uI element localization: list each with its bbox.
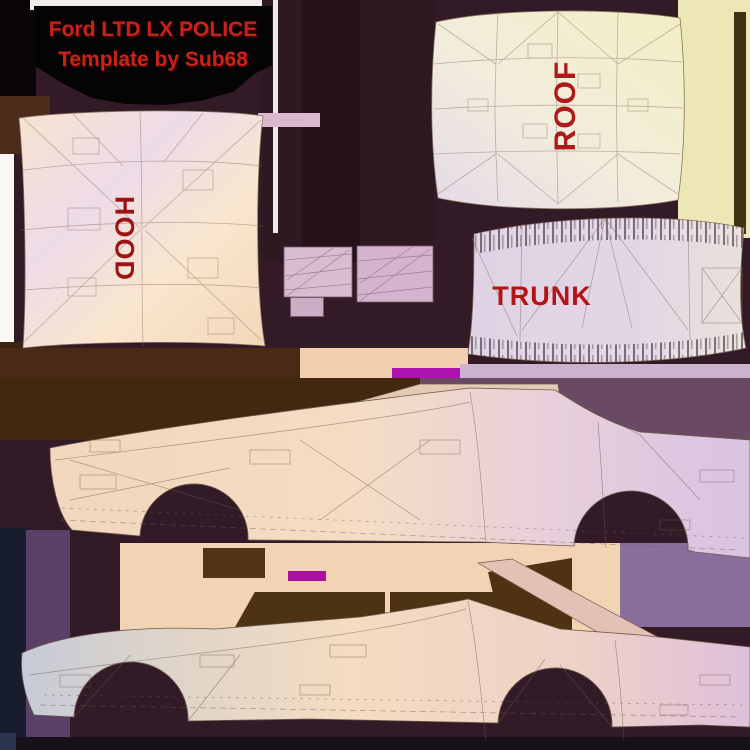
bg-right-olive-bar	[734, 12, 746, 234]
hood-label: HOOD	[105, 189, 140, 289]
lower-body-shape	[22, 599, 750, 727]
bg-topleft-black	[0, 0, 36, 108]
upper-body-shape	[50, 388, 750, 558]
trunk-label: TRUNK	[442, 281, 642, 312]
roof-label: ROOF	[549, 51, 585, 161]
title-box: Ford LTD LX POLICE Template by Sub68	[34, 6, 272, 108]
texture-template-canvas: Ford LTD LX POLICE Template by Sub68 HOO…	[0, 0, 750, 750]
lower-side-view	[0, 555, 750, 750]
title-line-1: Ford LTD LX POLICE	[34, 6, 272, 42]
title-line-2: Template by Sub68	[34, 42, 272, 72]
bumper-part-left	[283, 246, 353, 298]
upper-side-view	[0, 380, 750, 580]
bumper-part-tail	[290, 297, 324, 317]
hood-panel	[13, 108, 268, 352]
bg-midtop-dark-column	[302, 0, 360, 262]
bumper-part-right	[356, 245, 434, 303]
